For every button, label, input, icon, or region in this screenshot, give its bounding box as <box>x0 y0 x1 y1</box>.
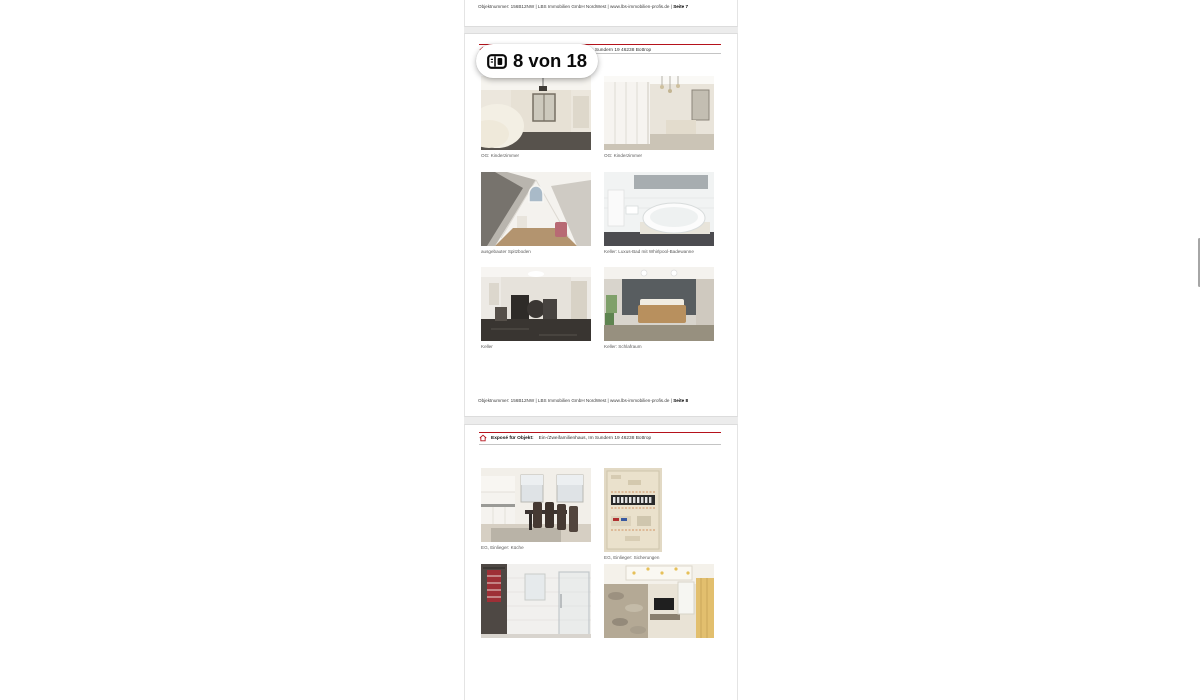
footer-page-number: Seite 8 <box>673 398 688 403</box>
photo-image <box>604 76 714 150</box>
photo-caption: Keller: Luxus-Bad mit Whirlpool-Badewann… <box>604 249 714 254</box>
page-footer: Objektnummer: 156B12NW | LBS Immobilien … <box>478 398 727 403</box>
photo-image <box>604 172 714 246</box>
photo-caption: OG: Kinderzimmer <box>481 153 591 158</box>
photo-image <box>481 468 591 542</box>
page-counter-icon <box>487 54 507 69</box>
page-indicator-label: 8 von 18 <box>513 50 587 72</box>
footer-text: Objektnummer: 156B12NW | LBS Immobilien … <box>478 398 672 403</box>
photo-caption: OG: Kinderzimmer <box>604 153 714 158</box>
photo-eg-einlieger-kueche: EG, Einlieger: Küche <box>481 468 591 550</box>
document-header: Exposé für Objekt: Ein-/Zweifamilienhaus… <box>479 433 721 443</box>
photo-caption: EG, Einlieger: Küche <box>481 545 591 550</box>
photo-keller: Keller <box>481 267 591 349</box>
page-indicator-badge: 8 von 18 <box>476 44 598 78</box>
document-page-7-fragment: Objektnummer: 156B12NW | LBS Immobilien … <box>464 0 738 27</box>
photo-eg-einlieger-bad <box>481 564 591 638</box>
footer-page-number: Seite 7 <box>673 4 688 9</box>
header-address: Ein-/Zweifamilienhaus, Im Sundern 19 462… <box>539 436 652 441</box>
photo-ausgebauter-spitzboden: ausgebauter Spitzboden <box>481 172 591 254</box>
photo-keller-schlafraum: Keller: Schlafraum <box>604 267 714 349</box>
photo-og-kinderzimmer-1: OG: Kinderzimmer <box>481 76 591 158</box>
photo-og-kinderzimmer-2: OG: Kinderzimmer <box>604 76 714 158</box>
photo-caption: ausgebauter Spitzboden <box>481 249 591 254</box>
header-rule-gray <box>479 444 721 445</box>
photo-image <box>604 267 714 341</box>
page-footer: Objektnummer: 156B12NW | LBS Immobilien … <box>478 4 727 9</box>
photo-caption: Keller: Schlafraum <box>604 344 714 349</box>
photo-image <box>604 564 714 638</box>
document-page-8: Exposé für Objekt: Ein-/Zweifamilienhaus… <box>464 33 738 417</box>
pdf-viewer-column: Objektnummer: 156B12NW | LBS Immobilien … <box>464 0 738 600</box>
photo-eg-wohnzimmer <box>604 564 714 638</box>
header-label: Exposé für Objekt: <box>491 436 534 441</box>
photo-image <box>604 468 662 552</box>
photo-image <box>481 172 591 246</box>
photo-image <box>481 564 591 638</box>
document-page-9: Exposé für Objekt: Ein-/Zweifamilienhaus… <box>464 424 738 700</box>
photo-keller-luxus-bad: Keller: Luxus-Bad mit Whirlpool-Badewann… <box>604 172 714 254</box>
photo-caption: EG, Einlieger: Sicherungen <box>604 555 662 560</box>
photo-image <box>481 267 591 341</box>
photo-image <box>481 76 591 150</box>
photo-eg-einlieger-sicherungen: EG, Einlieger: Sicherungen <box>604 468 662 560</box>
lbs-house-logo-icon <box>479 434 487 442</box>
footer-text: Objektnummer: 156B12NW | LBS Immobilien … <box>478 4 672 9</box>
photo-caption: Keller <box>481 344 591 349</box>
